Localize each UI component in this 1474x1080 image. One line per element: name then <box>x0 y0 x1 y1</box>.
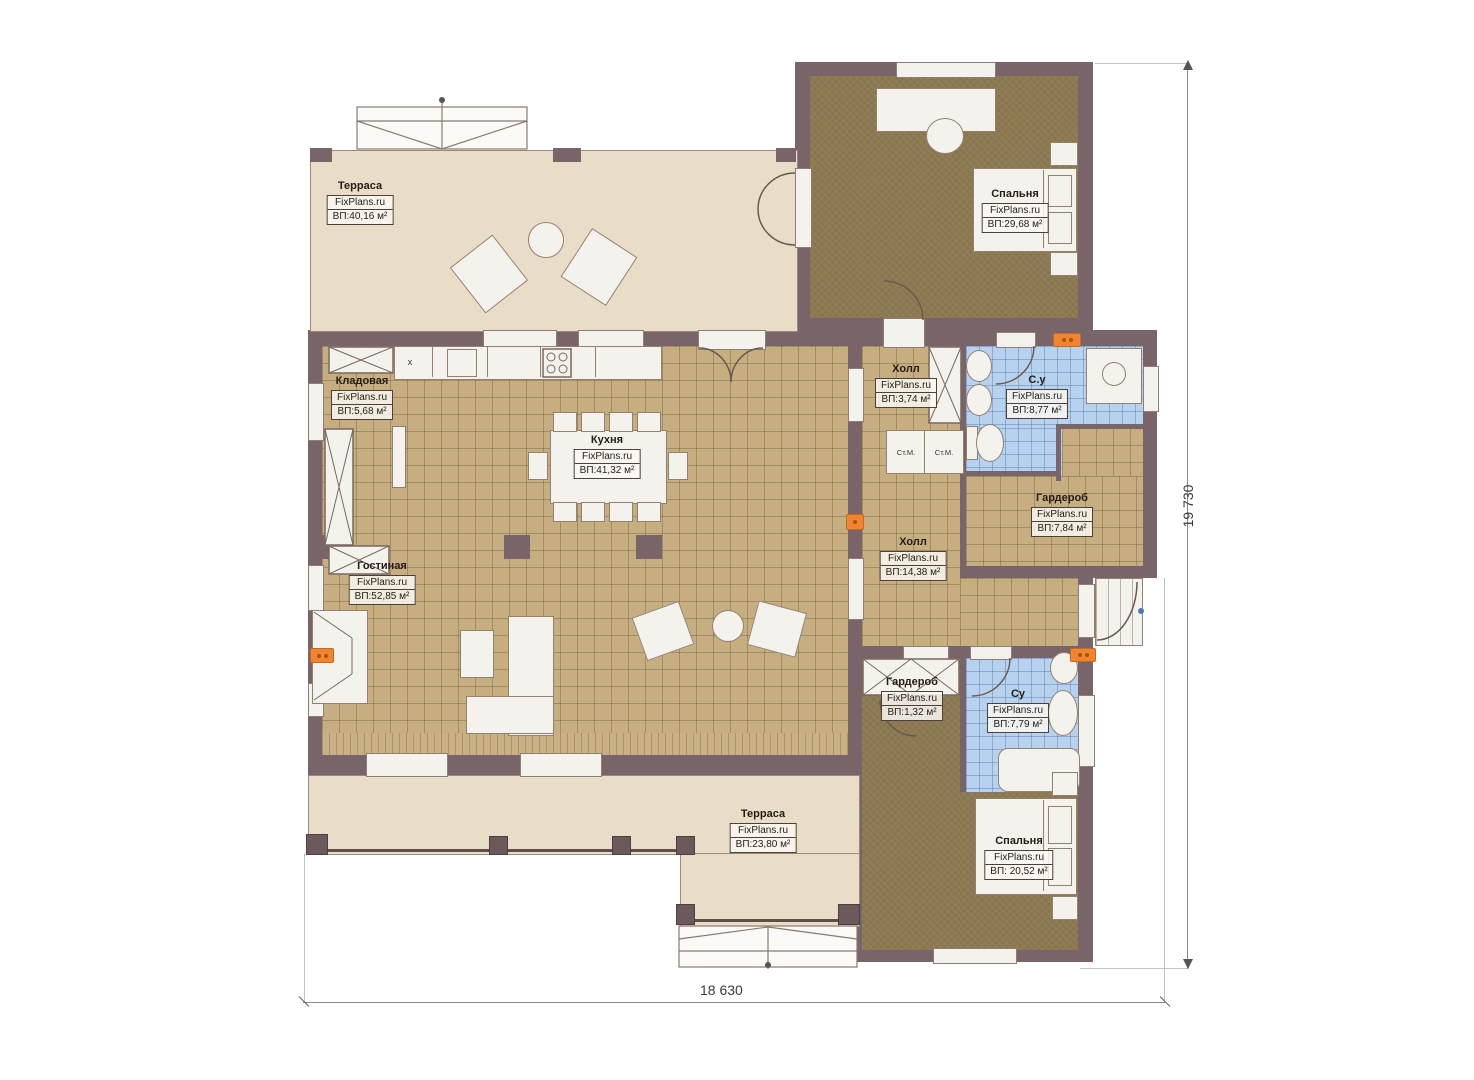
counter-divider <box>487 347 488 377</box>
room-area: ВП:52,85 м² <box>350 589 415 604</box>
shelf-x-box <box>324 428 354 546</box>
dining-chair <box>553 412 577 432</box>
room-label-wardrobe-top: Гардероб FixPlans.ru ВП:7,84 м² <box>1031 492 1093 537</box>
floor-hall-east <box>960 578 1078 646</box>
room-name: Спальня <box>984 835 1053 848</box>
door-opening-pantry <box>392 426 406 488</box>
nightstand <box>1052 772 1078 796</box>
dining-chair <box>668 452 688 480</box>
dining-chair <box>637 412 661 432</box>
door-opening-bedroom-hall <box>883 318 925 348</box>
stairs-top <box>356 106 528 150</box>
window <box>308 383 324 441</box>
room-area: ВП:5,68 м² <box>332 404 392 419</box>
window <box>1078 695 1095 767</box>
room-area: ВП:40,16 м² <box>328 209 393 224</box>
column <box>636 535 662 559</box>
extension-line <box>1095 63 1187 64</box>
radiator <box>846 514 864 530</box>
room-name: Спальня <box>982 188 1049 201</box>
room-area: ВП:7,79 м² <box>988 717 1048 732</box>
room-name: Кладовая <box>331 375 393 388</box>
dining-chair <box>581 412 605 432</box>
cabinet-x-label: x <box>398 350 422 374</box>
radiator <box>1070 648 1096 662</box>
room-brand: FixPlans.ru <box>983 204 1048 218</box>
dimension-width-label: 18 630 <box>700 982 743 998</box>
room-name: Холл <box>880 536 947 549</box>
extension-line <box>1080 968 1187 969</box>
room-area: ВП: 20,52 м² <box>985 864 1052 879</box>
arrow-down-icon <box>1183 959 1193 969</box>
terrace-post <box>489 836 508 855</box>
window <box>896 62 996 78</box>
room-name: Терраса <box>730 808 797 821</box>
room-label-bathroom-bottom: Су FixPlans.ru ВП:7,79 м² <box>987 688 1049 733</box>
room-brand: FixPlans.ru <box>876 379 936 393</box>
stairs-bottom <box>678 925 858 967</box>
opening-living-hall <box>848 558 864 620</box>
door-opening-terrace-living <box>698 330 766 350</box>
room-brand: FixPlans.ru <box>350 576 415 590</box>
floor-deck-strip <box>322 733 848 755</box>
nightstand <box>1052 896 1078 920</box>
dining-chair <box>528 452 548 480</box>
radiator <box>310 648 334 663</box>
room-label-bedroom-bottom: Спальня FixPlans.ru ВП: 20,52 м² <box>984 835 1053 880</box>
room-name: Холл <box>875 363 937 376</box>
window <box>366 753 448 777</box>
room-label-terrace-top: Терраса FixPlans.ru ВП:40,16 м² <box>327 180 394 225</box>
room-area: ВП:7,84 м² <box>1032 521 1092 536</box>
dining-chair <box>637 502 661 522</box>
window <box>795 168 812 248</box>
stove-icon <box>542 348 572 378</box>
room-name: Кухня <box>574 434 641 447</box>
counter-divider <box>432 347 433 377</box>
room-brand: FixPlans.ru <box>731 824 796 838</box>
terrace-post <box>676 904 695 925</box>
shower-head <box>1102 362 1126 386</box>
side-table <box>712 610 744 642</box>
room-brand: FixPlans.ru <box>881 552 946 566</box>
sink <box>966 350 992 382</box>
room-brand: FixPlans.ru <box>882 692 942 706</box>
room-brand: FixPlans.ru <box>332 391 392 405</box>
column <box>504 535 530 559</box>
room-brand: FixPlans.ru <box>1032 508 1092 522</box>
opening-kitchen-hall <box>848 368 864 422</box>
extension-line <box>1164 578 1165 1003</box>
extension-line <box>304 853 305 1003</box>
floor-living-kitchen <box>322 346 848 755</box>
room-label-bedroom-top: Спальня FixPlans.ru ВП:29,68 м² <box>982 188 1049 233</box>
room-area: ВП:14,38 м² <box>881 565 946 580</box>
dimension-height-label: 19 730 <box>1180 461 1196 551</box>
dimension-line-width <box>303 1002 1165 1003</box>
arrow-up-icon <box>1183 60 1193 70</box>
window <box>520 753 602 777</box>
room-name: Су <box>987 688 1049 701</box>
counter-divider <box>540 347 541 377</box>
room-label-terrace-bottom: Терраса FixPlans.ru ВП:23,80 м² <box>730 808 797 853</box>
window <box>933 948 1017 964</box>
dining-chair <box>609 412 633 432</box>
wall-partition <box>1056 424 1144 429</box>
room-area: ВП:23,80 м² <box>731 837 796 852</box>
room-area: ВП:41,32 м² <box>575 463 640 478</box>
room-name: Гостиная <box>349 560 416 573</box>
terrace-rail <box>688 919 844 922</box>
dining-chair <box>581 502 605 522</box>
floor-plan: x Ст.М. Ст.М. <box>0 0 1474 1080</box>
kitchen-counter <box>394 346 662 380</box>
sofa-chaise <box>466 696 554 734</box>
door-arc-entry <box>1097 582 1137 640</box>
wall-stub <box>310 148 332 162</box>
room-label-hall-main: Холл FixPlans.ru ВП:14,38 м² <box>880 536 947 581</box>
room-area: ВП:3,74 м² <box>876 392 936 407</box>
nightstand <box>1050 142 1078 166</box>
terrace-post <box>838 904 860 925</box>
window <box>308 565 324 611</box>
dining-chair <box>553 502 577 522</box>
room-area: ВП:29,68 м² <box>983 217 1048 232</box>
door-opening-entry <box>1078 584 1095 638</box>
room-area: ВП:8,77 м² <box>1007 403 1067 418</box>
room-brand: FixPlans.ru <box>1007 390 1067 404</box>
washer: Ст.М. <box>886 430 926 474</box>
room-name: Терраса <box>327 180 394 193</box>
room-label-hall-small: Холл FixPlans.ru ВП:3,74 м² <box>875 363 937 408</box>
radiator <box>1053 333 1081 347</box>
room-area: ВП:1,32 м² <box>882 705 942 720</box>
wall-partition <box>966 471 1061 476</box>
pillow <box>1048 212 1072 244</box>
room-label-wardrobe-small: Гардероб FixPlans.ru ВП:1,32 м² <box>881 676 943 721</box>
nightstand <box>1050 252 1078 276</box>
floor-wardrobe-top-b <box>1062 428 1143 476</box>
room-label-kitchen: Кухня FixPlans.ru ВП:41,32 м² <box>574 434 641 479</box>
porch-marker-dot <box>1138 608 1144 614</box>
sink <box>966 384 992 416</box>
coffee-table <box>460 630 494 678</box>
desk-chair <box>926 118 964 154</box>
terrace-post <box>612 836 631 855</box>
counter-divider <box>595 347 596 377</box>
shelf-x-box <box>328 346 394 374</box>
double-door-arc <box>757 172 795 246</box>
window <box>1143 366 1159 412</box>
wall-stub <box>776 148 796 162</box>
floor-terrace-bottom-ext <box>680 853 860 927</box>
double-door-arc <box>698 348 764 382</box>
kitchen-sink <box>447 349 477 377</box>
dining-chair <box>609 502 633 522</box>
terrace-table <box>528 222 564 258</box>
room-name: С.у <box>1006 374 1068 387</box>
room-label-pantry: Кладовая FixPlans.ru ВП:5,68 м² <box>331 375 393 420</box>
terrace-post <box>676 836 695 855</box>
toilet <box>976 424 1004 462</box>
room-brand: FixPlans.ru <box>575 450 640 464</box>
room-brand: FixPlans.ru <box>985 851 1052 865</box>
door-arc <box>884 281 923 320</box>
wall-stub <box>553 148 581 162</box>
room-name: Гардероб <box>881 676 943 689</box>
room-name: Гардероб <box>1031 492 1093 505</box>
room-brand: FixPlans.ru <box>988 704 1048 718</box>
sink <box>1048 690 1078 736</box>
dryer: Ст.М. <box>924 430 964 474</box>
room-label-bathroom-top: С.у FixPlans.ru ВП:8,77 м² <box>1006 374 1068 419</box>
room-label-living: Гостиная FixPlans.ru ВП:52,85 м² <box>349 560 416 605</box>
terrace-post <box>306 834 328 855</box>
room-brand: FixPlans.ru <box>328 196 393 210</box>
pillow <box>1048 175 1072 207</box>
